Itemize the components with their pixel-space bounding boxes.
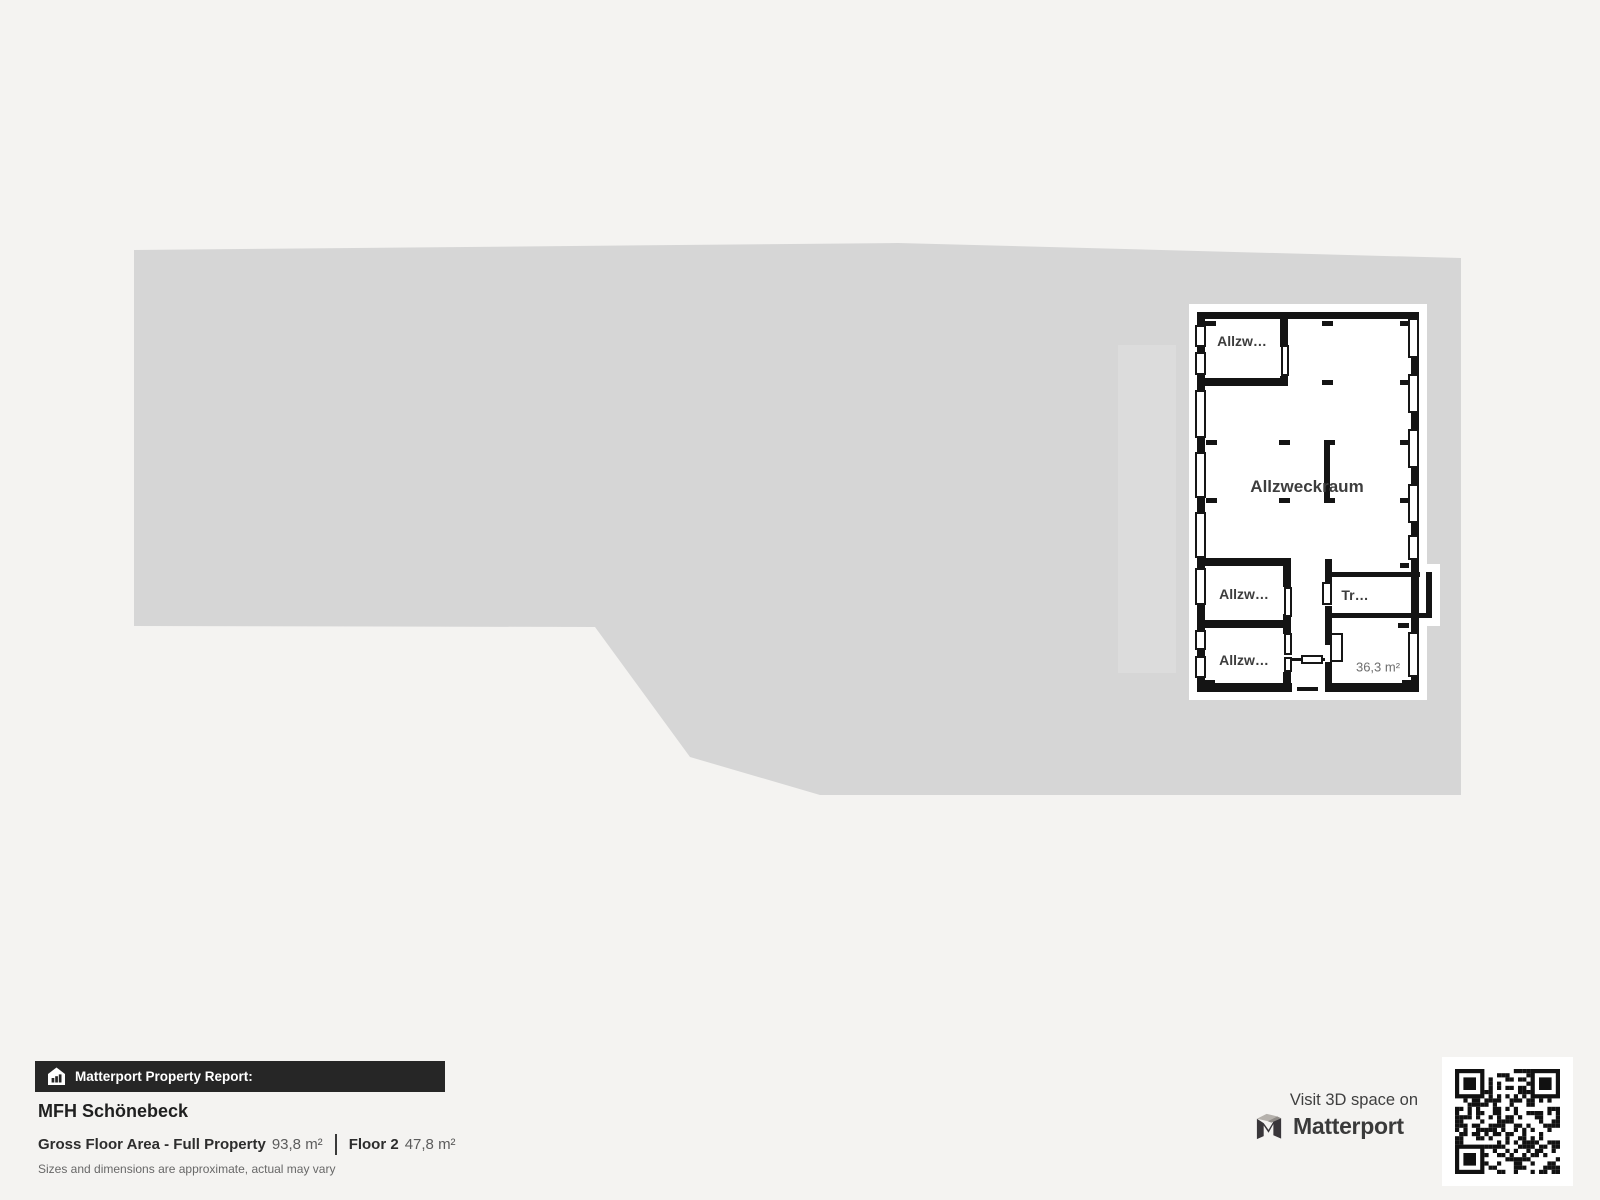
wall-stairs-top [1330, 572, 1420, 577]
house-chart-icon [47, 1067, 66, 1086]
door [1330, 633, 1343, 662]
room-label-main: Allzweckraum [1250, 477, 1363, 497]
visit-3d-text: Visit 3D space on [1290, 1091, 1418, 1110]
room-label-top: Allzw… [1217, 333, 1267, 349]
door [1284, 657, 1292, 672]
wall-stub [1279, 440, 1290, 445]
wall-room-divider [1197, 620, 1283, 628]
wall-stairs-right [1426, 572, 1432, 618]
wall-stairs-bottom [1325, 613, 1432, 618]
disclaimer-note: Sizes and dimensions are approximate, ac… [38, 1162, 335, 1176]
floor-plan: Allzw… Allzweckraum Allzw… Allzw… Tr… 36… [1189, 304, 1444, 704]
qr-code[interactable] [1442, 1057, 1573, 1186]
window [1408, 484, 1419, 523]
window [1195, 452, 1206, 498]
wall-hall-vertical [1325, 662, 1332, 692]
wall-stub [1322, 321, 1333, 326]
door [1284, 587, 1292, 617]
matterport-brand-link[interactable]: Matterport [1254, 1110, 1404, 1142]
area-summary-line: Gross Floor Area - Full Property 93,8 m²… [38, 1134, 456, 1155]
room-label-bottom: Allzw… [1219, 652, 1269, 668]
window [1408, 429, 1419, 468]
wall-stub [1402, 680, 1413, 685]
floor-label: Floor 2 [349, 1136, 399, 1153]
room-area-value: 36,3 m² [1356, 660, 1400, 675]
wall-top-room-bottom [1197, 378, 1288, 386]
property-title: MFH Schönebeck [38, 1101, 188, 1122]
wall-rooms-vertical [1283, 672, 1291, 692]
property-report-page: Allzw… Allzweckraum Allzw… Allzw… Tr… 36… [0, 0, 1600, 1200]
report-bar-label: Matterport Property Report: [75, 1069, 253, 1084]
door [1284, 633, 1292, 655]
qr-code-pattern [1455, 1069, 1560, 1174]
matterport-logo-icon [1254, 1110, 1285, 1142]
window [1408, 632, 1419, 677]
gfa-label: Gross Floor Area - Full Property [38, 1136, 266, 1153]
other-floor-ghost [1118, 345, 1176, 673]
wall-rooms-vertical [1283, 614, 1291, 634]
window [1195, 325, 1206, 347]
report-header-bar: Matterport Property Report: [35, 1061, 445, 1092]
bottom-opening-threshold [1297, 687, 1318, 691]
door [1281, 345, 1289, 376]
window [1195, 630, 1206, 650]
window [1195, 352, 1206, 375]
wall-stub [1279, 498, 1290, 503]
window [1195, 656, 1206, 678]
window [1408, 318, 1419, 358]
room-label-mid: Allzw… [1219, 586, 1269, 602]
matterport-wordmark: Matterport [1293, 1113, 1404, 1140]
wall-top-room-vertical [1280, 312, 1288, 347]
wall-mid-room-top [1197, 558, 1291, 566]
gfa-value: 93,8 m² [272, 1136, 323, 1153]
window [1195, 390, 1206, 438]
window [1195, 512, 1206, 558]
wall-stub [1398, 623, 1409, 628]
window [1195, 568, 1206, 605]
window [1408, 535, 1419, 560]
building-footprint [1189, 304, 1427, 700]
room-label-stairs: Tr… [1341, 587, 1368, 603]
wall-outer-top [1197, 312, 1419, 319]
wall-stub [1322, 380, 1333, 385]
wall-stub [1204, 680, 1215, 685]
divider [335, 1134, 337, 1155]
wall-stub [1205, 321, 1216, 326]
floor-value: 47,8 m² [405, 1136, 456, 1153]
wall-stub [1400, 563, 1409, 568]
wall-rooms-vertical [1283, 558, 1291, 587]
window [1408, 374, 1419, 413]
wall-stub [1206, 440, 1217, 445]
door [1301, 655, 1323, 664]
wall-stub [1206, 498, 1217, 503]
window [1322, 582, 1332, 605]
